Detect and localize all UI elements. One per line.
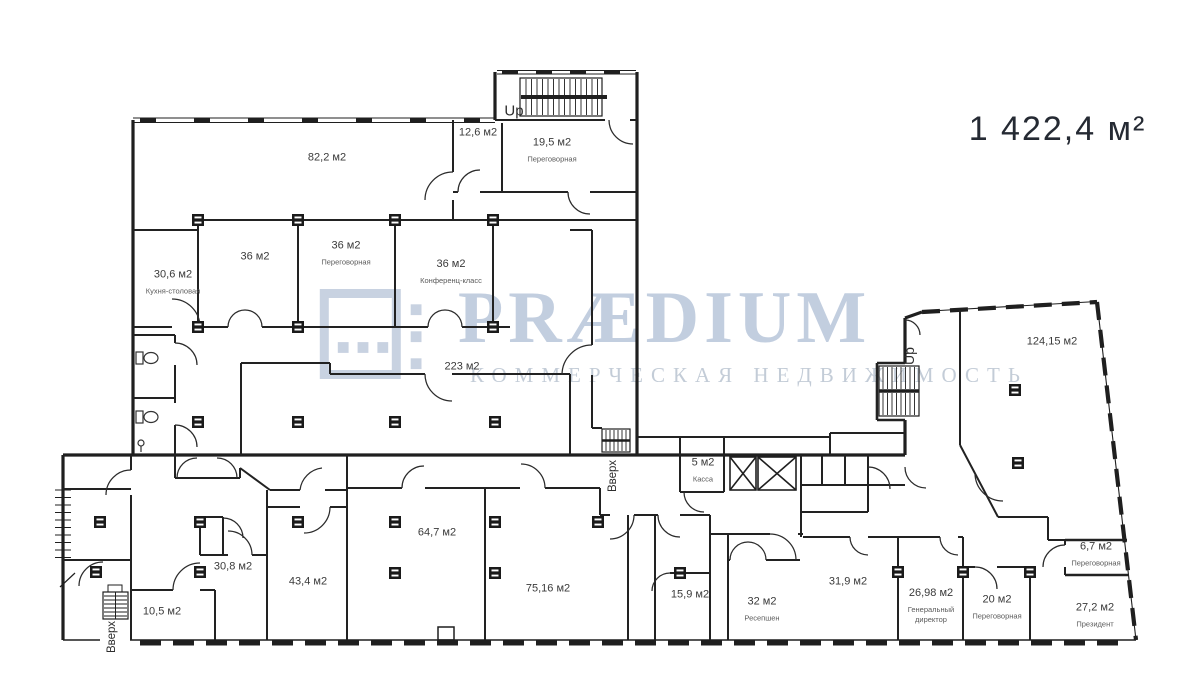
room-area: 223 м2 bbox=[444, 360, 479, 373]
room-area: 30,8 м2 bbox=[214, 560, 252, 573]
room-name: Переговорная bbox=[527, 155, 576, 164]
stair-direction-label: Вверх bbox=[106, 621, 118, 653]
stair-direction-label: Up bbox=[504, 103, 523, 120]
room-area: 6,7 м2 bbox=[1071, 540, 1120, 553]
room-label: 30,6 м2Кухня-столовая bbox=[146, 268, 200, 295]
total-area-label: 1 422,4 м² bbox=[950, 110, 1165, 149]
floorplan-page: PRÆDIUM КОММЕРЧЕСКАЯ НЕДВИЖИМОСТЬ bbox=[0, 0, 1199, 680]
room-label: 5 м2Касса bbox=[692, 456, 715, 483]
room-area: 36 м2 bbox=[321, 239, 370, 252]
room-area: 30,6 м2 bbox=[146, 268, 200, 281]
room-label: 31,9 м2 bbox=[829, 575, 867, 588]
room-label: 43,4 м2 bbox=[289, 575, 327, 588]
room-area: 32 м2 bbox=[744, 595, 779, 608]
room-label: 26,98 м2Генеральный директор bbox=[898, 587, 964, 625]
room-name: Генеральный директор bbox=[898, 605, 964, 625]
room-label: 32 м2Ресепшен bbox=[744, 595, 779, 622]
room-area: 10,5 м2 bbox=[143, 605, 181, 618]
room-area: 31,9 м2 bbox=[829, 575, 867, 588]
room-label: 36 м2Конференц-класс bbox=[418, 258, 484, 286]
room-area: 15,9 м2 bbox=[671, 588, 709, 601]
room-label: 15,9 м2 bbox=[671, 588, 709, 601]
room-label: 36 м2Переговорная bbox=[321, 239, 370, 266]
room-label: 6,7 м2Переговорная bbox=[1071, 540, 1120, 567]
room-area: 36 м2 bbox=[418, 258, 484, 271]
room-name: Ресепшен bbox=[744, 614, 779, 623]
room-area: 19,5 м2 bbox=[527, 136, 576, 149]
labels-layer: 82,2 м212,6 м219,5 м2Переговорная30,6 м2… bbox=[0, 0, 1199, 680]
room-area: 75,16 м2 bbox=[526, 582, 570, 595]
room-area: 36 м2 bbox=[241, 250, 270, 263]
room-name: Президент bbox=[1076, 620, 1114, 629]
room-name: Переговорная bbox=[321, 258, 370, 267]
stair-direction-label: Up bbox=[901, 347, 917, 365]
room-name: Касса bbox=[692, 475, 715, 484]
room-label: 36 м2 bbox=[241, 250, 270, 263]
room-name: Кухня-столовая bbox=[146, 287, 200, 296]
room-label: 20 м2Переговорная bbox=[972, 593, 1021, 620]
room-area: 26,98 м2 bbox=[898, 587, 964, 600]
room-area: 20 м2 bbox=[972, 593, 1021, 606]
room-label: 10,5 м2 bbox=[143, 605, 181, 618]
room-area: 64,7 м2 bbox=[418, 526, 456, 539]
room-name: Переговорная bbox=[972, 612, 1021, 621]
room-label: 64,7 м2 bbox=[418, 526, 456, 539]
room-label: 12,6 м2 bbox=[459, 126, 497, 139]
room-area: 5 м2 bbox=[692, 456, 715, 469]
room-area: 82,2 м2 bbox=[308, 151, 346, 164]
room-label: 75,16 м2 bbox=[526, 582, 570, 595]
room-name: Конференц-класс bbox=[418, 276, 484, 286]
room-label: 19,5 м2Переговорная bbox=[527, 136, 576, 163]
room-name: Переговорная bbox=[1071, 559, 1120, 568]
room-label: 27,2 м2Президент bbox=[1076, 601, 1114, 628]
room-label: 124,15 м2 bbox=[1027, 335, 1077, 348]
stair-direction-label: Вверх bbox=[607, 460, 619, 492]
room-label: 30,8 м2 bbox=[214, 560, 252, 573]
room-area: 27,2 м2 bbox=[1076, 601, 1114, 614]
room-label: 223 м2 bbox=[444, 360, 479, 373]
room-area: 12,6 м2 bbox=[459, 126, 497, 139]
room-area: 43,4 м2 bbox=[289, 575, 327, 588]
room-label: 82,2 м2 bbox=[308, 151, 346, 164]
room-area: 124,15 м2 bbox=[1027, 335, 1077, 348]
